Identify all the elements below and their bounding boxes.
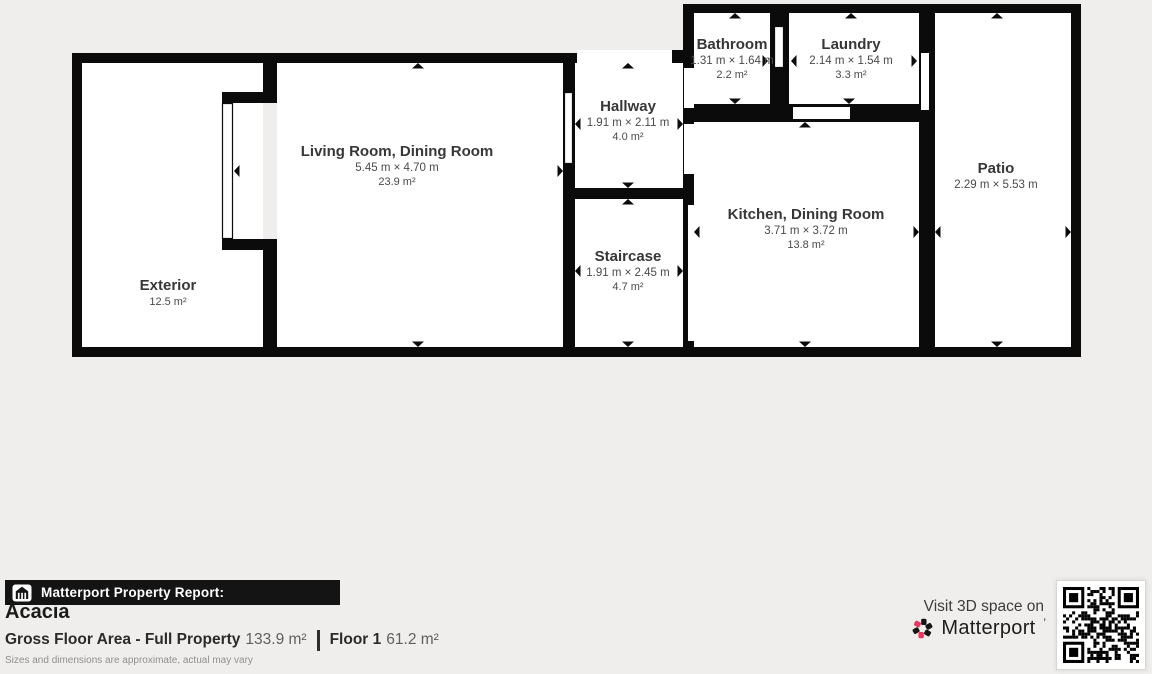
matterport-logo: Matterport ’ — [900, 617, 1046, 640]
room-area-hallway: 4.0 m² — [612, 131, 644, 143]
room-label-kitchen-dining-room: Kitchen, Dining Room — [728, 206, 885, 223]
brand-wordmark: Matterport — [941, 617, 1035, 640]
trademark-tick: ’ — [1044, 617, 1046, 629]
room-label-exterior: Exterior — [140, 277, 197, 294]
divider — [317, 630, 320, 651]
room-area-exterior: 12.5 m² — [149, 296, 187, 308]
room-dims-bathroom: 1.31 m × 1.64 m — [690, 55, 773, 67]
floor-label: Floor 1 — [330, 631, 382, 649]
room-floor-living-room-dining-room — [277, 63, 563, 347]
floor-plan: Bathroom1.31 m × 1.64 m2.2 m²Laundry2.14… — [0, 0, 1152, 420]
room-label-staircase: Staircase — [595, 248, 662, 265]
page: Bathroom1.31 m × 1.64 m2.2 m²Laundry2.14… — [0, 0, 1152, 674]
report-title: Matterport Property Report: — [41, 585, 224, 600]
matterport-property-icon — [12, 584, 32, 602]
room-dims-kitchen-dining-room: 3.71 m × 3.72 m — [764, 225, 847, 237]
property-name: Acacia — [5, 601, 70, 624]
room-label-living-room-dining-room: Living Room, Dining Room — [301, 143, 493, 160]
visit-3d-text: Visit 3D space on — [910, 598, 1044, 616]
room-label-hallway: Hallway — [600, 98, 657, 115]
gfa-value: 133.9 m² — [245, 631, 306, 649]
room-dims-laundry: 2.14 m × 1.54 m — [809, 55, 892, 67]
gfa-label: Gross Floor Area - Full Property — [5, 631, 240, 649]
room-area-bathroom: 2.2 m² — [716, 69, 748, 81]
room-area-kitchen-dining-room: 13.8 m² — [787, 239, 825, 251]
floor-area-line: Gross Floor Area - Full Property 133.9 m… — [5, 628, 439, 652]
room-dims-patio: 2.29 m × 5.53 m — [954, 179, 1037, 191]
room-area-laundry: 3.3 m² — [835, 69, 867, 81]
room-label-bathroom: Bathroom — [697, 36, 768, 53]
disclaimer-text: Sizes and dimensions are approximate, ac… — [5, 655, 253, 666]
room-dims-living-room-dining-room: 5.45 m × 4.70 m — [355, 162, 438, 174]
floor-value: 61.2 m² — [386, 631, 439, 649]
qr-card — [1056, 580, 1146, 670]
room-label-laundry: Laundry — [821, 36, 881, 53]
room-dims-staircase: 1.91 m × 2.45 m — [586, 267, 669, 279]
room-dims-hallway: 1.91 m × 2.11 m — [587, 117, 670, 129]
matterport-pinwheel-icon — [911, 617, 934, 640]
room-area-staircase: 4.7 m² — [612, 281, 644, 293]
qr-code — [1063, 587, 1139, 663]
room-area-living-room-dining-room: 23.9 m² — [378, 176, 416, 188]
room-label-patio: Patio — [978, 160, 1015, 177]
